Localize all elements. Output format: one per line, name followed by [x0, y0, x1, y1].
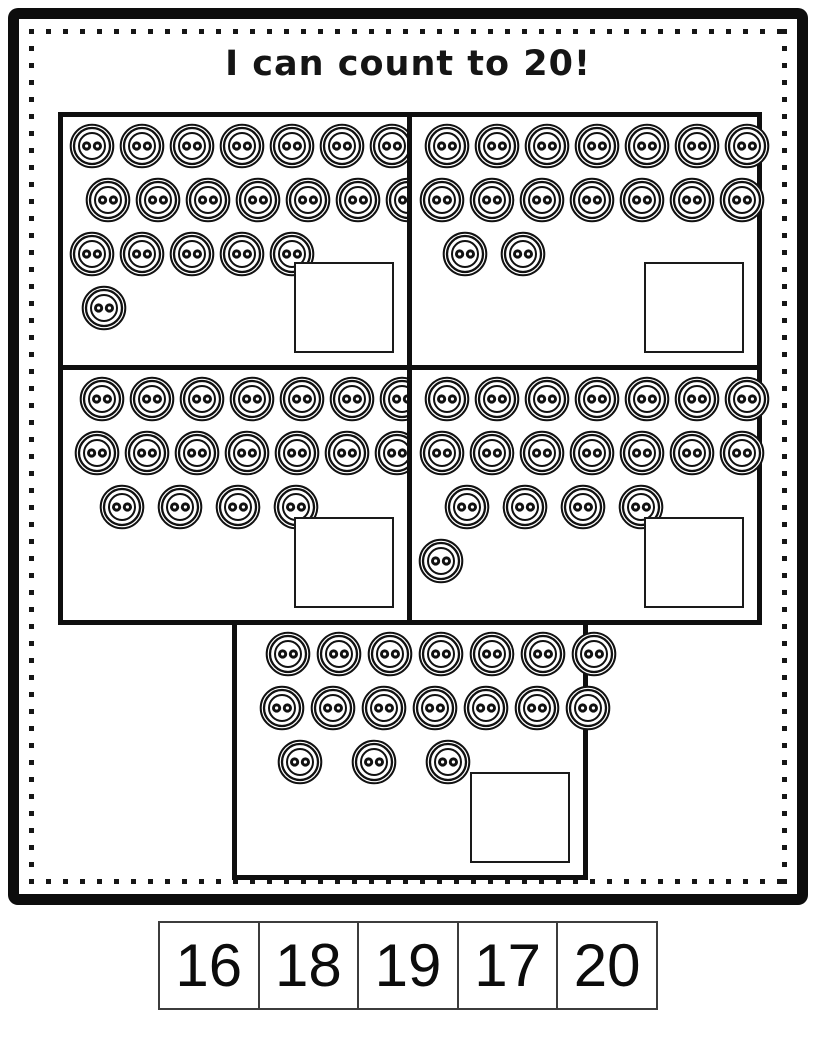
two-hole-button-icon: [316, 631, 362, 677]
two-hole-button-icon: [219, 231, 265, 277]
two-hole-button-icon: [442, 231, 488, 277]
two-hole-button-icon: [185, 177, 231, 223]
two-hole-button-icon: [619, 177, 665, 223]
answer-box-bottom-center[interactable]: [470, 772, 570, 863]
two-hole-button-icon: [571, 631, 617, 677]
two-hole-button-icon: [669, 430, 715, 476]
two-hole-button-icon: [674, 123, 720, 169]
two-hole-button-icon: [367, 631, 413, 677]
page-title: I can count to 20!: [0, 44, 816, 84]
two-hole-button-icon: [624, 123, 670, 169]
two-hole-button-icon: [274, 430, 320, 476]
two-hole-button-icon: [169, 231, 215, 277]
two-hole-button-icon: [335, 177, 381, 223]
two-hole-button-icon: [235, 177, 281, 223]
number-tile-18[interactable]: 18: [260, 923, 360, 1008]
two-hole-button-icon: [324, 430, 370, 476]
two-hole-button-icon: [719, 177, 765, 223]
two-hole-button-icon: [129, 376, 175, 422]
button-row: [265, 631, 579, 677]
two-hole-button-icon: [569, 430, 615, 476]
two-hole-button-icon: [99, 484, 145, 530]
number-tile-17[interactable]: 17: [459, 923, 559, 1008]
button-row: [69, 123, 403, 169]
count-box-middle-left: [58, 365, 412, 625]
two-hole-button-icon: [669, 177, 715, 223]
two-hole-button-icon: [179, 376, 225, 422]
two-hole-button-icon: [79, 376, 125, 422]
two-hole-button-icon: [74, 430, 120, 476]
two-hole-button-icon: [619, 430, 665, 476]
two-hole-button-icon: [500, 231, 546, 277]
answer-box-top-right[interactable]: [644, 262, 744, 353]
two-hole-button-icon: [81, 285, 127, 331]
two-hole-button-icon: [524, 376, 570, 422]
two-hole-button-icon: [418, 538, 464, 584]
two-hole-button-icon: [519, 177, 565, 223]
two-hole-button-icon: [259, 685, 305, 731]
two-hole-button-icon: [569, 177, 615, 223]
two-hole-button-icon: [624, 376, 670, 422]
two-hole-button-icon: [319, 123, 365, 169]
two-hole-button-icon: [361, 685, 407, 731]
two-hole-button-icon: [69, 123, 115, 169]
two-hole-button-icon: [418, 631, 464, 677]
two-hole-button-icon: [119, 123, 165, 169]
two-hole-button-icon: [224, 430, 270, 476]
two-hole-button-icon: [265, 631, 311, 677]
worksheet-page: I can count to 20! 1618191720: [0, 0, 816, 1056]
two-hole-button-icon: [469, 631, 515, 677]
two-hole-button-icon: [719, 430, 765, 476]
count-box-top-right: [407, 112, 762, 370]
answer-tile-strip: 1618191720: [158, 921, 658, 1010]
two-hole-button-icon: [219, 123, 265, 169]
two-hole-button-icon: [519, 430, 565, 476]
number-tile-16[interactable]: 16: [160, 923, 260, 1008]
two-hole-button-icon: [85, 177, 131, 223]
two-hole-button-icon: [269, 123, 315, 169]
two-hole-button-icon: [502, 484, 548, 530]
two-hole-button-icon: [574, 123, 620, 169]
two-hole-button-icon: [124, 430, 170, 476]
button-row: [419, 177, 753, 223]
two-hole-button-icon: [419, 177, 465, 223]
two-hole-button-icon: [157, 484, 203, 530]
button-row: [85, 177, 403, 223]
two-hole-button-icon: [474, 123, 520, 169]
two-hole-button-icon: [469, 430, 515, 476]
button-row: [419, 430, 753, 476]
two-hole-button-icon: [444, 484, 490, 530]
button-row: [79, 376, 403, 422]
button-rows: [416, 123, 753, 285]
two-hole-button-icon: [474, 376, 520, 422]
number-tile-20[interactable]: 20: [558, 923, 656, 1008]
button-row: [424, 376, 753, 422]
count-box-bottom-center: [232, 620, 588, 880]
button-rows: [241, 631, 579, 793]
two-hole-button-icon: [560, 484, 606, 530]
two-hole-button-icon: [119, 231, 165, 277]
two-hole-button-icon: [565, 685, 611, 731]
two-hole-button-icon: [424, 123, 470, 169]
two-hole-button-icon: [135, 177, 181, 223]
two-hole-button-icon: [310, 685, 356, 731]
two-hole-button-icon: [329, 376, 375, 422]
count-box-top-left: [58, 112, 412, 370]
two-hole-button-icon: [277, 739, 323, 785]
button-row: [259, 685, 579, 731]
two-hole-button-icon: [520, 631, 566, 677]
two-hole-button-icon: [285, 177, 331, 223]
two-hole-button-icon: [574, 376, 620, 422]
button-row: [74, 430, 403, 476]
button-rows: [67, 376, 403, 538]
two-hole-button-icon: [724, 376, 770, 422]
two-hole-button-icon: [229, 376, 275, 422]
count-box-middle-right: [407, 365, 762, 625]
two-hole-button-icon: [424, 376, 470, 422]
answer-box-middle-right[interactable]: [644, 517, 744, 608]
two-hole-button-icon: [674, 376, 720, 422]
two-hole-button-icon: [412, 685, 458, 731]
two-hole-button-icon: [524, 123, 570, 169]
two-hole-button-icon: [169, 123, 215, 169]
two-hole-button-icon: [469, 177, 515, 223]
two-hole-button-icon: [419, 430, 465, 476]
two-hole-button-icon: [724, 123, 770, 169]
two-hole-button-icon: [215, 484, 261, 530]
two-hole-button-icon: [279, 376, 325, 422]
two-hole-button-icon: [174, 430, 220, 476]
two-hole-button-icon: [69, 231, 115, 277]
two-hole-button-icon: [351, 739, 397, 785]
answer-box-middle-left[interactable]: [294, 517, 394, 608]
answer-box-top-left[interactable]: [294, 262, 394, 353]
two-hole-button-icon: [514, 685, 560, 731]
number-tile-19[interactable]: 19: [359, 923, 459, 1008]
two-hole-button-icon: [425, 739, 471, 785]
button-row: [424, 123, 753, 169]
two-hole-button-icon: [463, 685, 509, 731]
